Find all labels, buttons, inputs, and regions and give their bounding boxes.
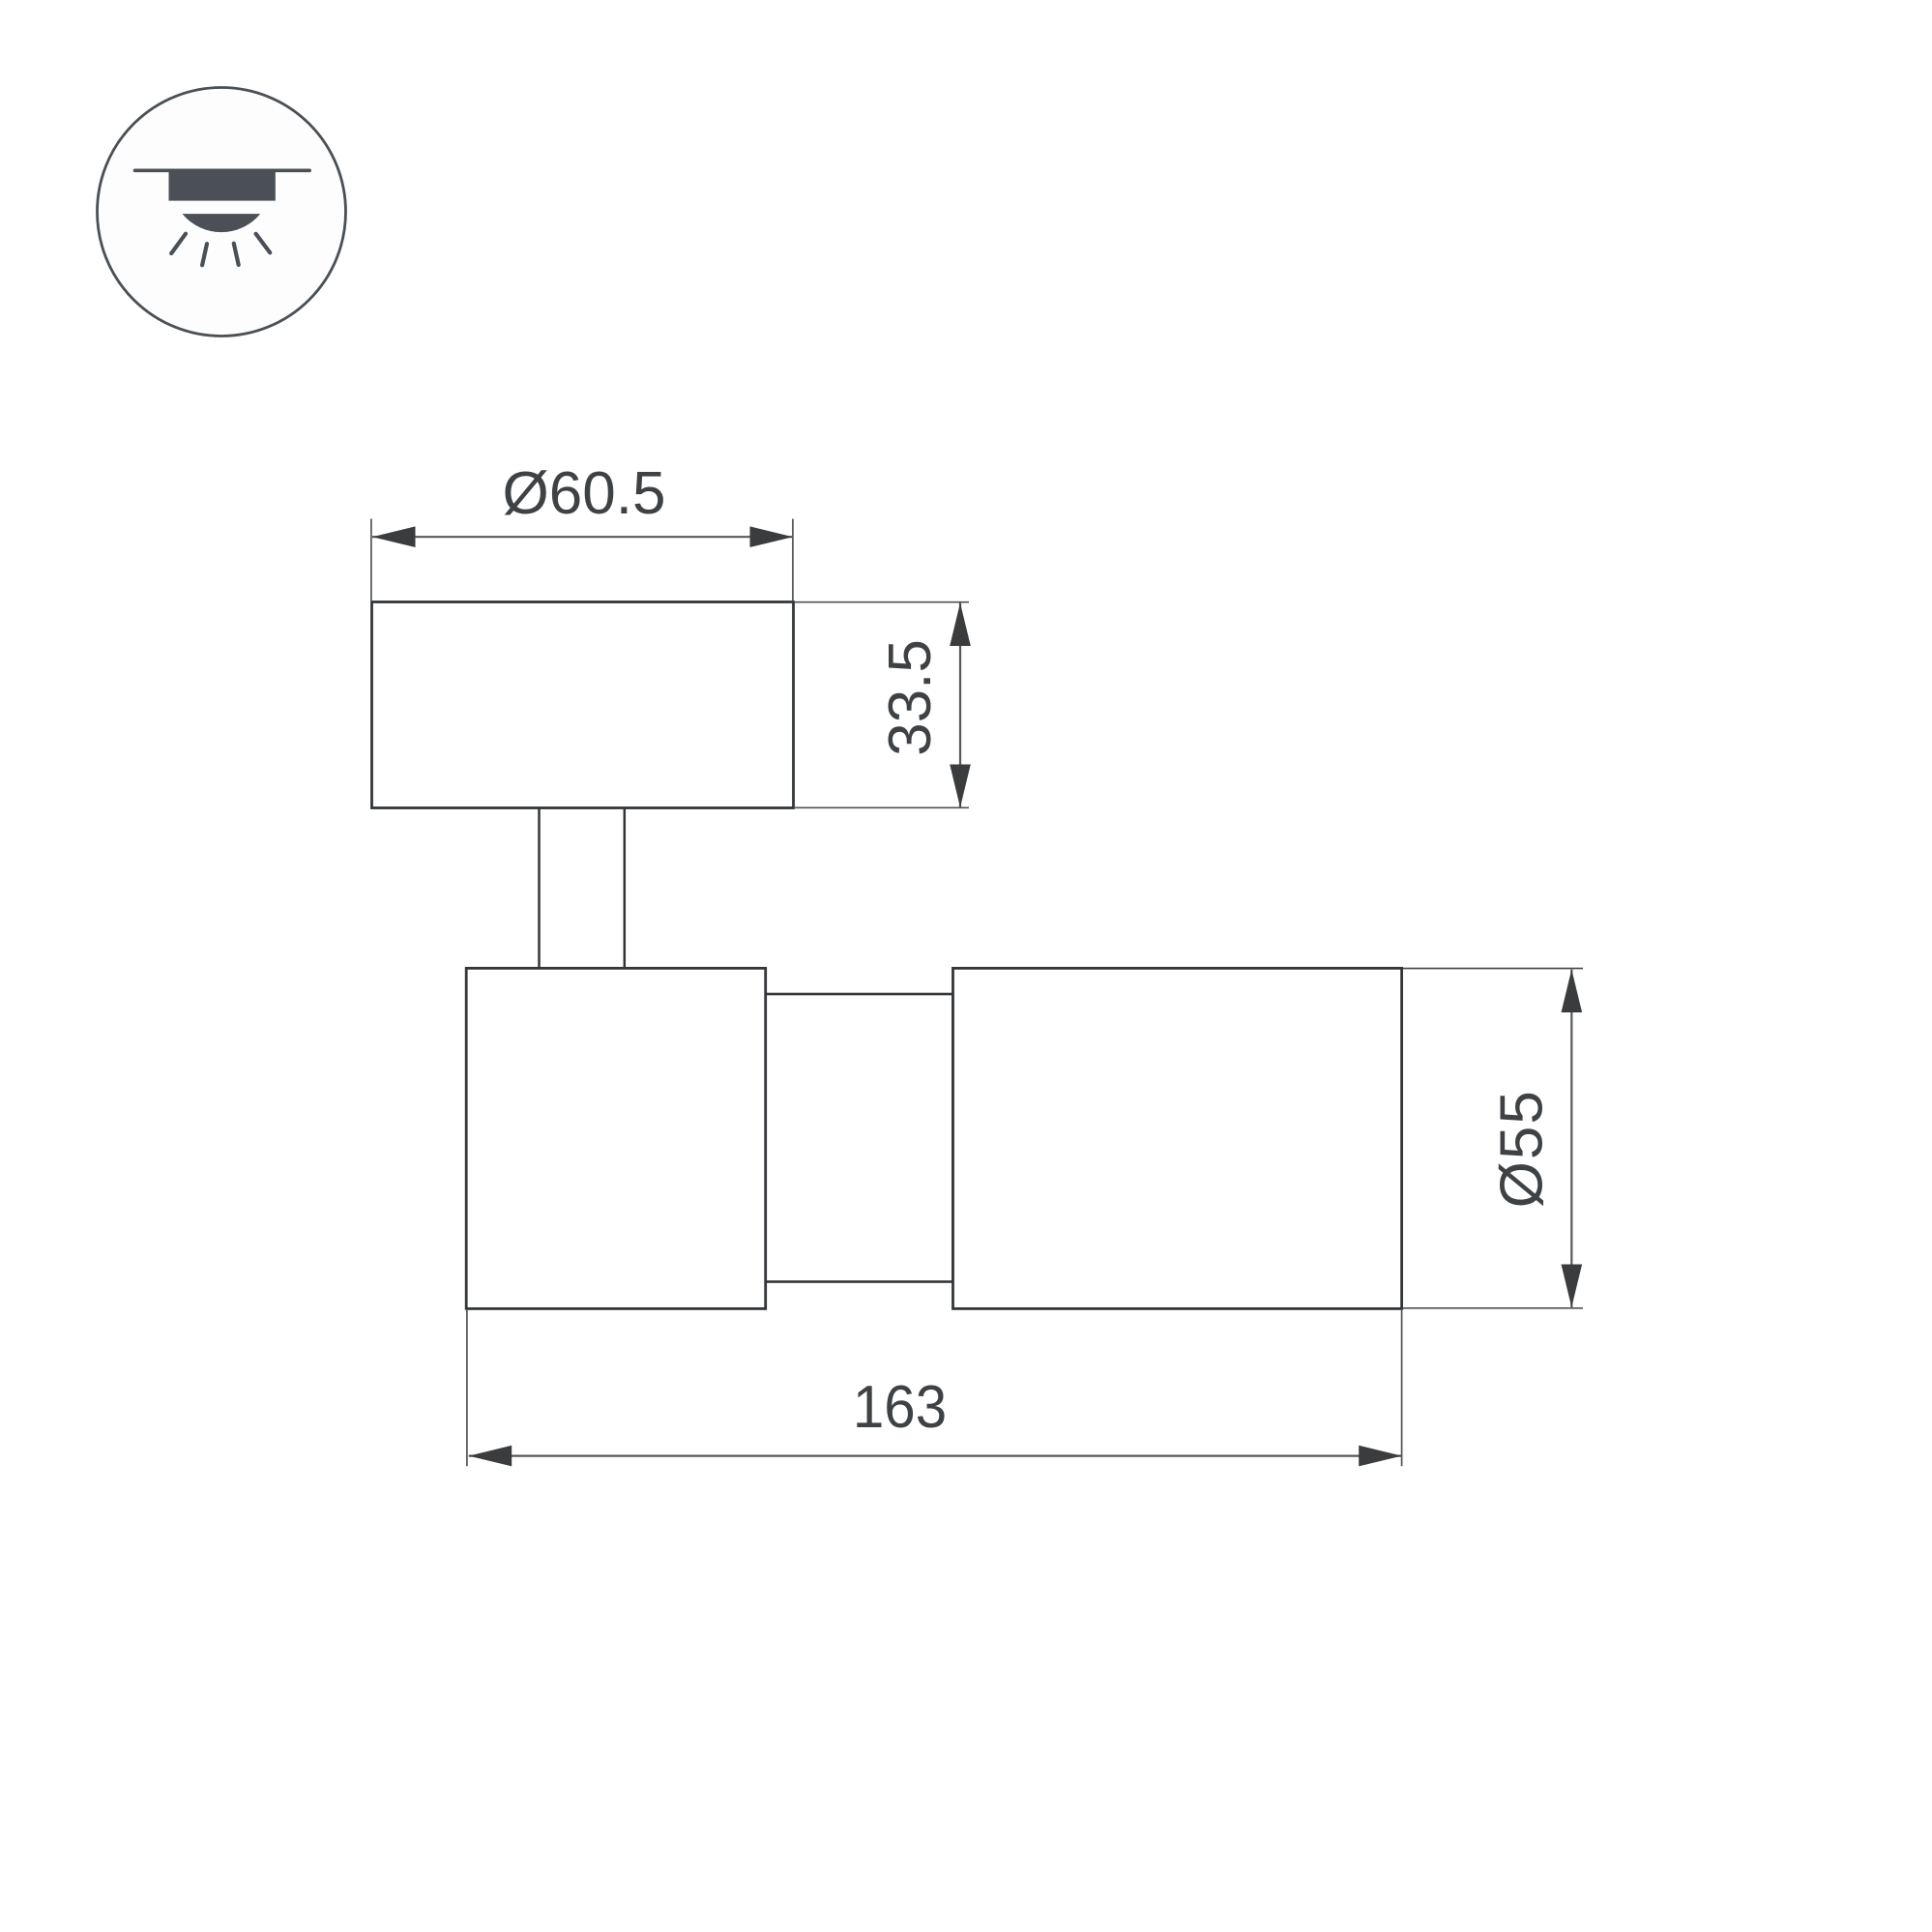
svg-text:Ø55: Ø55	[1488, 1089, 1555, 1208]
svg-text:163: 163	[853, 1373, 947, 1440]
svg-text:33.5: 33.5	[877, 639, 944, 756]
svg-text:Ø60.5: Ø60.5	[503, 460, 666, 527]
